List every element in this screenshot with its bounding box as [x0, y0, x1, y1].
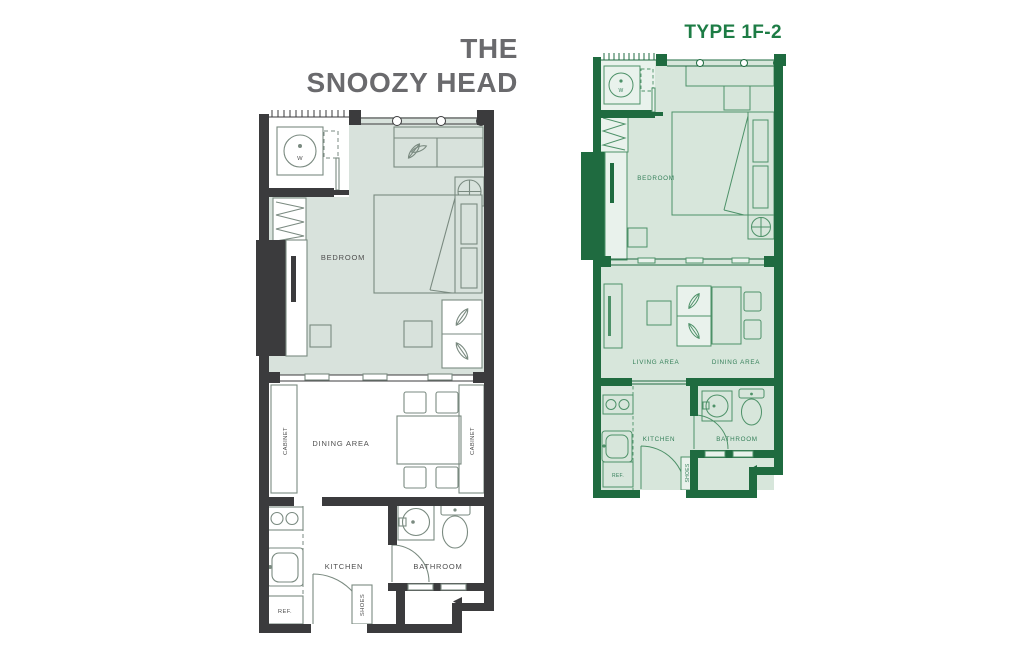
bedroom-label: BEDROOM [321, 253, 365, 262]
washer-label: W [618, 88, 623, 94]
fridge-symbol: REF. [268, 596, 303, 624]
fridge-label: REF. [612, 473, 624, 479]
tv-cabinet [286, 240, 307, 356]
bathroom-label: BATHROOM [413, 562, 462, 571]
shoes-label: SHOES [360, 594, 366, 616]
dining-area-label: DINING AREA [712, 359, 760, 366]
nightstand-symbol [310, 325, 331, 347]
wardrobe-symbol [600, 114, 628, 152]
bed-symbol [374, 195, 482, 293]
washer-label: W [297, 156, 303, 162]
tv-icon [291, 256, 296, 302]
floorplan-canvas: THE SNOOZY HEAD TYPE 1F-2 W [0, 0, 1024, 656]
right-plan-title: TYPE 1F-2 [684, 22, 782, 43]
wardrobe-symbol [273, 198, 306, 242]
dining-area-label: DINING AREA [312, 439, 369, 448]
tv-icon [610, 163, 614, 203]
daybed-symbol [677, 286, 711, 346]
toilet-symbol [441, 504, 470, 548]
floorplan-page: THE SNOOZY HEAD TYPE 1F-2 W [0, 0, 1024, 656]
cabinet-right-label: CABINET [470, 427, 476, 455]
fridge-label: REF. [278, 609, 292, 615]
bathroom-label: BATHROOM [716, 436, 758, 443]
left-title-line2: SNOOZY HEAD [307, 67, 518, 98]
left-title-line1: THE [460, 33, 518, 64]
stove-symbol [268, 507, 303, 530]
ottoman-symbol [404, 321, 432, 347]
left-floor-plan: W [256, 110, 494, 633]
bedroom-label: BEDROOM [637, 175, 674, 182]
tv-cabinet [605, 152, 627, 260]
living-area-label: LIVING AREA [633, 359, 680, 366]
kitchen-label: KITCHEN [643, 436, 676, 443]
kitchen-sink-symbol [267, 548, 303, 586]
bench-symbol [442, 300, 482, 368]
left-plan-title: THE SNOOZY HEAD [307, 33, 518, 98]
cabinet-left-label: CABINET [283, 427, 289, 455]
shoes-label: SHOES [685, 463, 691, 482]
right-floor-plan: W [581, 53, 786, 498]
nightstand-symbol [628, 228, 647, 247]
basin-symbol [398, 504, 434, 540]
kitchen-label: KITCHEN [325, 562, 364, 571]
bed-symbol [672, 112, 774, 215]
